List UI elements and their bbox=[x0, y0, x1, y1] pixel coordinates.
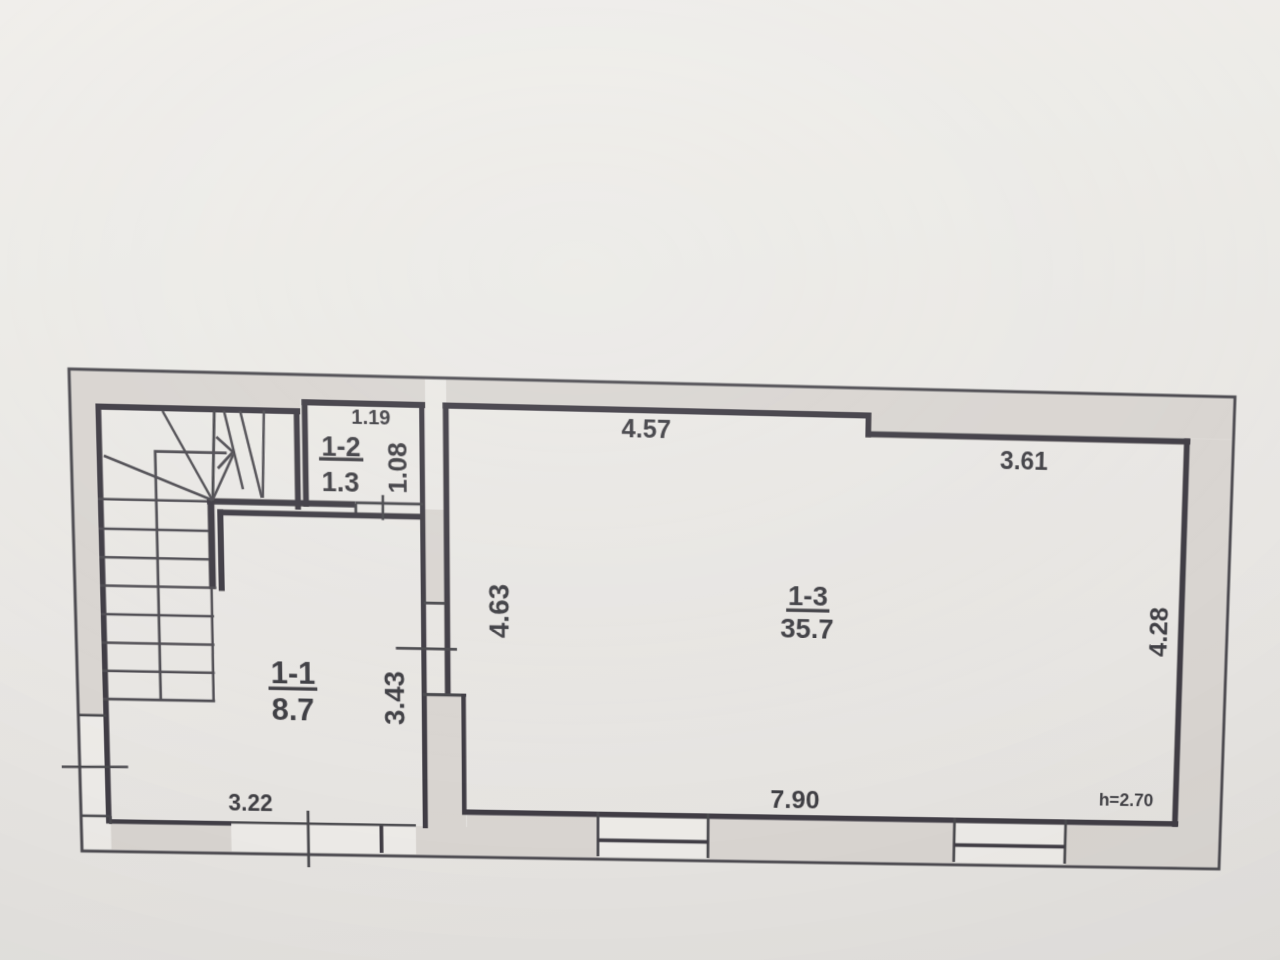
svg-text:1-3: 1-3 bbox=[788, 581, 828, 612]
svg-text:3.61: 3.61 bbox=[1000, 448, 1048, 476]
svg-text:8.7: 8.7 bbox=[271, 692, 314, 727]
svg-text:1.19: 1.19 bbox=[351, 406, 390, 430]
svg-text:3.22: 3.22 bbox=[228, 791, 273, 817]
svg-text:35.7: 35.7 bbox=[780, 613, 834, 645]
svg-text:4.28: 4.28 bbox=[1144, 607, 1174, 657]
svg-text:4.57: 4.57 bbox=[621, 414, 671, 444]
svg-text:h=2.70: h=2.70 bbox=[1099, 789, 1154, 810]
svg-text:7.90: 7.90 bbox=[770, 785, 820, 814]
svg-text:1-1: 1-1 bbox=[270, 655, 315, 690]
svg-text:3.43: 3.43 bbox=[380, 671, 411, 725]
svg-text:1.08: 1.08 bbox=[383, 442, 413, 494]
svg-text:4.63: 4.63 bbox=[484, 584, 515, 639]
svg-text:1.3: 1.3 bbox=[321, 467, 359, 498]
